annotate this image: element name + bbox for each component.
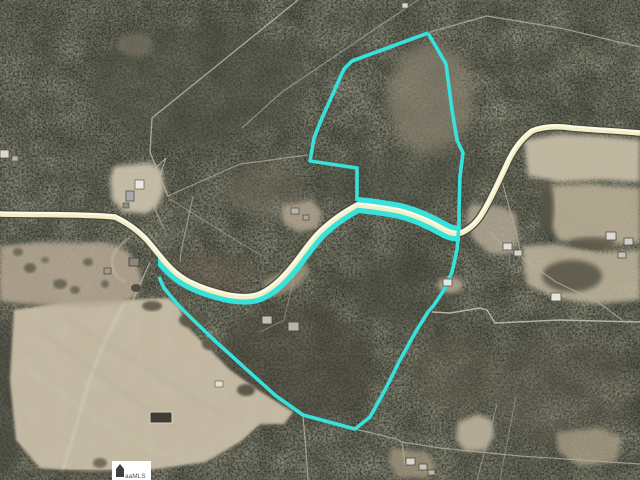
svg-text:aaMLS: aaMLS <box>125 473 146 480</box>
